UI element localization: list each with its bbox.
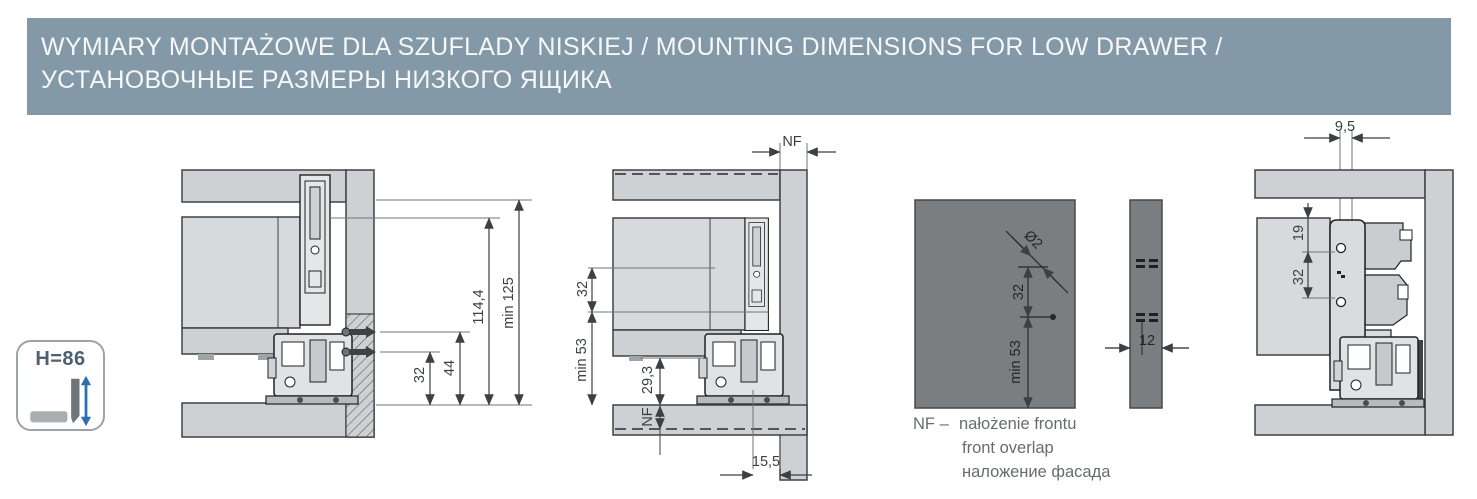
diagram-front-panel-drilling (900, 195, 1200, 420)
dim-label-min-53: min 53 (574, 338, 590, 382)
nf-legend: NF –nałożenie frontu front overlap налож… (913, 412, 1110, 484)
front-panel-edge (1105, 200, 1189, 408)
dim-label-min-53: min 53 (1008, 340, 1024, 384)
front-panel-face (915, 200, 1075, 408)
slide-mechanism (1332, 337, 1424, 407)
dim-label-min-125: min 125 (501, 277, 517, 329)
diagram-section-overlay (555, 125, 885, 497)
slide-mechanism (266, 334, 358, 404)
dim-label-32: 32 (575, 281, 591, 297)
drawer-height-badge: H=86 (16, 340, 105, 431)
dim-label-12: 12 (1139, 333, 1155, 349)
diagram-bracket-view (1240, 115, 1477, 460)
cabinet-top-panel (613, 170, 780, 200)
dim-label-29-3: 29,3 (640, 366, 656, 394)
dim-label-32: 32 (412, 367, 428, 383)
dim-label-9-5: 9,5 (1335, 119, 1355, 135)
dim-label-44: 44 (442, 360, 458, 376)
slide-mechanism (697, 334, 789, 404)
drawer-height-label: H=86 (18, 348, 103, 371)
section-title-bar: WYMIARY MONTAŻOWE DLA SZUFLADY NISKIEJ /… (27, 18, 1451, 115)
section-title-line1: WYMIARY MONTAŻOWE DLA SZUFLADY NISKIEJ /… (41, 31, 1451, 64)
section-title-line2: УСТАНОВОЧНЫЕ РАЗМЕРЫ НИЗКОГО ЯЩИКА (41, 64, 1451, 97)
nf-legend-ru: наложение фасада (962, 460, 1110, 484)
dim-label-nf-top: NF (782, 134, 801, 150)
drawer-back-rail (300, 175, 330, 325)
nf-legend-line-pl: NF –nałożenie frontu (913, 412, 1110, 436)
cabinet-bottom-panel (182, 403, 374, 437)
drawer-profile-icon (27, 375, 93, 427)
dim-label-32: 32 (1291, 269, 1307, 285)
nf-legend-term: NF – (913, 412, 959, 436)
dim-label-19: 19 (1291, 225, 1307, 241)
dim-label-15-5: 15,5 (752, 454, 780, 470)
nf-legend-en: front overlap (962, 436, 1110, 460)
catalog-page: WYMIARY MONTAŻOWE DLA SZUFLADY NISKIEJ /… (0, 0, 1477, 499)
dim-label-114-4: 114,4 (471, 289, 487, 324)
drawer-back-rail (745, 218, 768, 331)
diagram-section-mounted (140, 128, 550, 470)
dim-label-32: 32 (1011, 284, 1027, 300)
dim-label-nf-bottom: NF (640, 407, 656, 426)
nf-legend-pl: nałożenie frontu (959, 415, 1076, 433)
